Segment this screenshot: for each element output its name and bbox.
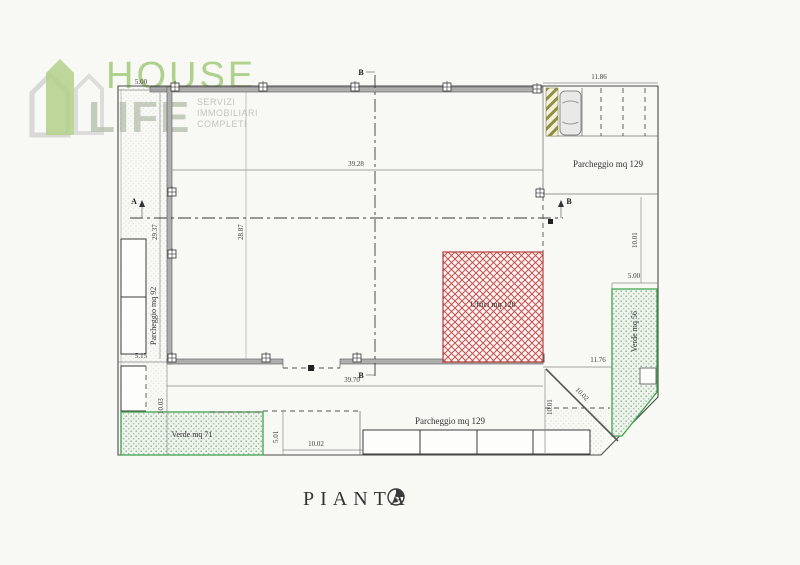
section-a-label-right: B: [566, 197, 572, 206]
logo-tagline-3: COMPLETI: [197, 119, 247, 129]
dim-diagonal: 10.02: [574, 386, 591, 403]
dim-hall-height-outer: 29.37: [151, 224, 159, 240]
floor-plan-scan: HOUSE LIFE SERVIZI IMMOBILIARI COMPLETI: [0, 0, 800, 565]
dim-hall-width-top: 39.28: [348, 160, 364, 168]
verde-e-label: Verde mq 56: [630, 311, 639, 352]
green-house-icon: [46, 59, 74, 135]
car-icon: [560, 91, 581, 135]
northeast-parking: Parcheggio mq 129: [543, 88, 658, 194]
section-line-b: B B: [358, 68, 375, 380]
dim-east-upper: 10.01: [631, 232, 639, 248]
entrance-door-mark: [308, 365, 314, 371]
verde-sw-area: Verde mq 71: [121, 412, 263, 455]
section-a-label-left: A: [131, 197, 137, 206]
section-line-a: A B: [130, 197, 572, 224]
verde-sw-label: Verde mq 71: [172, 430, 213, 439]
plan-title: PIANTA: [303, 488, 411, 510]
west-parking-spot-1: [121, 239, 146, 297]
dim-ne-width: 11.86: [591, 73, 607, 81]
logo-tagline-2: IMMOBILIARI: [197, 108, 258, 118]
dim-east-mid: 5.00: [628, 272, 641, 280]
dim-west-lower: 5.15: [135, 352, 148, 360]
dim-nw-offset: 5.00: [135, 78, 148, 86]
uffici-label: Uffici mq 120: [470, 300, 515, 309]
section-b-label-bottom: B: [358, 371, 364, 380]
dim-verde-sw-side: 5.01: [272, 430, 280, 443]
south-parking-label: Parcheggio mq 129: [415, 416, 485, 426]
dim-south-east: 10.01: [546, 399, 554, 415]
dim-hall-height-inner: 28.87: [237, 224, 245, 240]
dim-south-center: 10.02: [308, 440, 324, 448]
west-parking-label: Parcheggio mq 92: [149, 287, 158, 345]
logo-tagline-1: SERVIZI: [197, 97, 235, 107]
verde-e-utility-box: [640, 368, 656, 384]
dim-south-west: 10.03: [157, 398, 165, 414]
north-wall: [150, 87, 543, 92]
uffici-area: Uffici mq 120: [443, 252, 543, 362]
section-b-label-top: B: [358, 68, 364, 77]
west-wall: [167, 87, 172, 364]
west-parking-spot-2: [121, 297, 146, 354]
plan-drawing: HOUSE LIFE SERVIZI IMMOBILIARI COMPLETI: [0, 0, 800, 565]
drawing-title: PIANTA: [303, 488, 411, 510]
west-lower-bay: [121, 366, 146, 411]
verde-e-area: Verde mq 56: [612, 289, 657, 436]
northeast-parking-label: Parcheggio mq 129: [573, 159, 643, 169]
ramp-hatch: [546, 88, 558, 136]
dim-east-lower: 11.76: [590, 356, 606, 364]
